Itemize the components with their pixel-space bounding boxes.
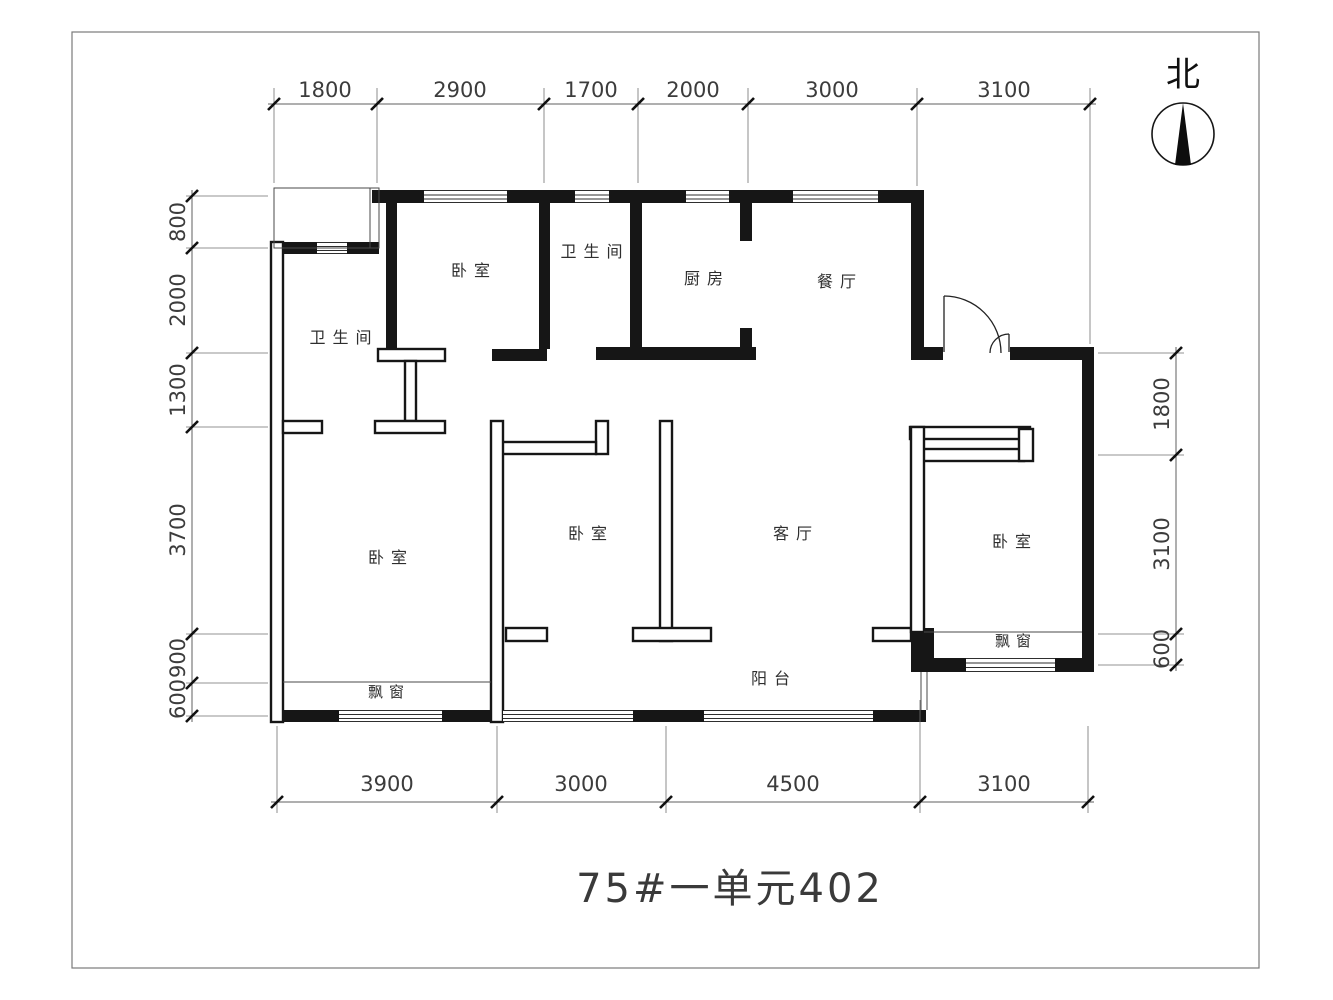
dimension-right: 1800 3100 600	[1098, 347, 1184, 671]
room-label-bay-window-left: 飘窗	[368, 683, 410, 701]
dim-label: 2000	[166, 273, 190, 326]
window	[793, 190, 878, 203]
dim-label: 900	[166, 638, 190, 678]
floor-plan-page: 1800 2900 1700 2000 3000 3100 3900 3000 …	[0, 0, 1333, 1000]
dim-label: 600	[1150, 629, 1174, 669]
dim-label: 1300	[166, 363, 190, 416]
room-label-bedroom-top: 卧室	[451, 261, 497, 280]
dim-label: 3100	[1150, 517, 1174, 570]
dimension-left: 800 2000 1300 3700 900 600	[166, 190, 268, 722]
dim-label: 2900	[433, 78, 486, 102]
north-label: 北	[1166, 55, 1200, 95]
room-label-living: 客厅	[773, 524, 819, 543]
exterior-projection	[274, 188, 379, 248]
dim-label: 800	[166, 202, 190, 242]
plan-title: 75#一单元402	[576, 866, 884, 912]
window	[686, 190, 729, 203]
dim-label: 3000	[554, 772, 607, 796]
compass-needle-icon	[1175, 103, 1191, 165]
room-label-balcony: 阳台	[751, 669, 797, 688]
dim-label: 3100	[977, 78, 1030, 102]
dim-label: 1700	[564, 78, 617, 102]
north-indicator: 北	[1152, 55, 1214, 165]
window	[966, 658, 1055, 672]
room-label-bay-window-right: 飘窗	[995, 632, 1037, 650]
floor-plan-canvas: 1800 2900 1700 2000 3000 3100 3900 3000 …	[0, 0, 1333, 1000]
room-label-dining: 餐厅	[817, 272, 863, 291]
dim-label: 3900	[360, 772, 413, 796]
room-label-bedroom-left: 卧室	[368, 548, 414, 567]
room-label-bedroom-right: 卧室	[992, 532, 1038, 551]
window	[424, 190, 507, 203]
dim-label: 2000	[666, 78, 719, 102]
dim-label: 600	[166, 679, 190, 719]
dim-label: 1800	[298, 78, 351, 102]
entry-door	[944, 296, 1009, 353]
dim-label: 4500	[766, 772, 819, 796]
dim-label: 3100	[977, 772, 1030, 796]
dim-label: 1800	[1150, 377, 1174, 430]
room-label-bedroom-middle: 卧室	[568, 524, 614, 543]
window	[339, 710, 442, 722]
dim-label: 3000	[805, 78, 858, 102]
dim-label: 3700	[166, 503, 190, 556]
window	[503, 710, 633, 722]
room-label-bathroom-top: 卫生间	[560, 242, 629, 261]
room-label-bathroom-left: 卫生间	[309, 328, 378, 347]
room-label-kitchen: 厨房	[684, 269, 730, 288]
window	[575, 190, 609, 203]
window	[704, 710, 873, 722]
balcony-side-line	[921, 672, 927, 710]
